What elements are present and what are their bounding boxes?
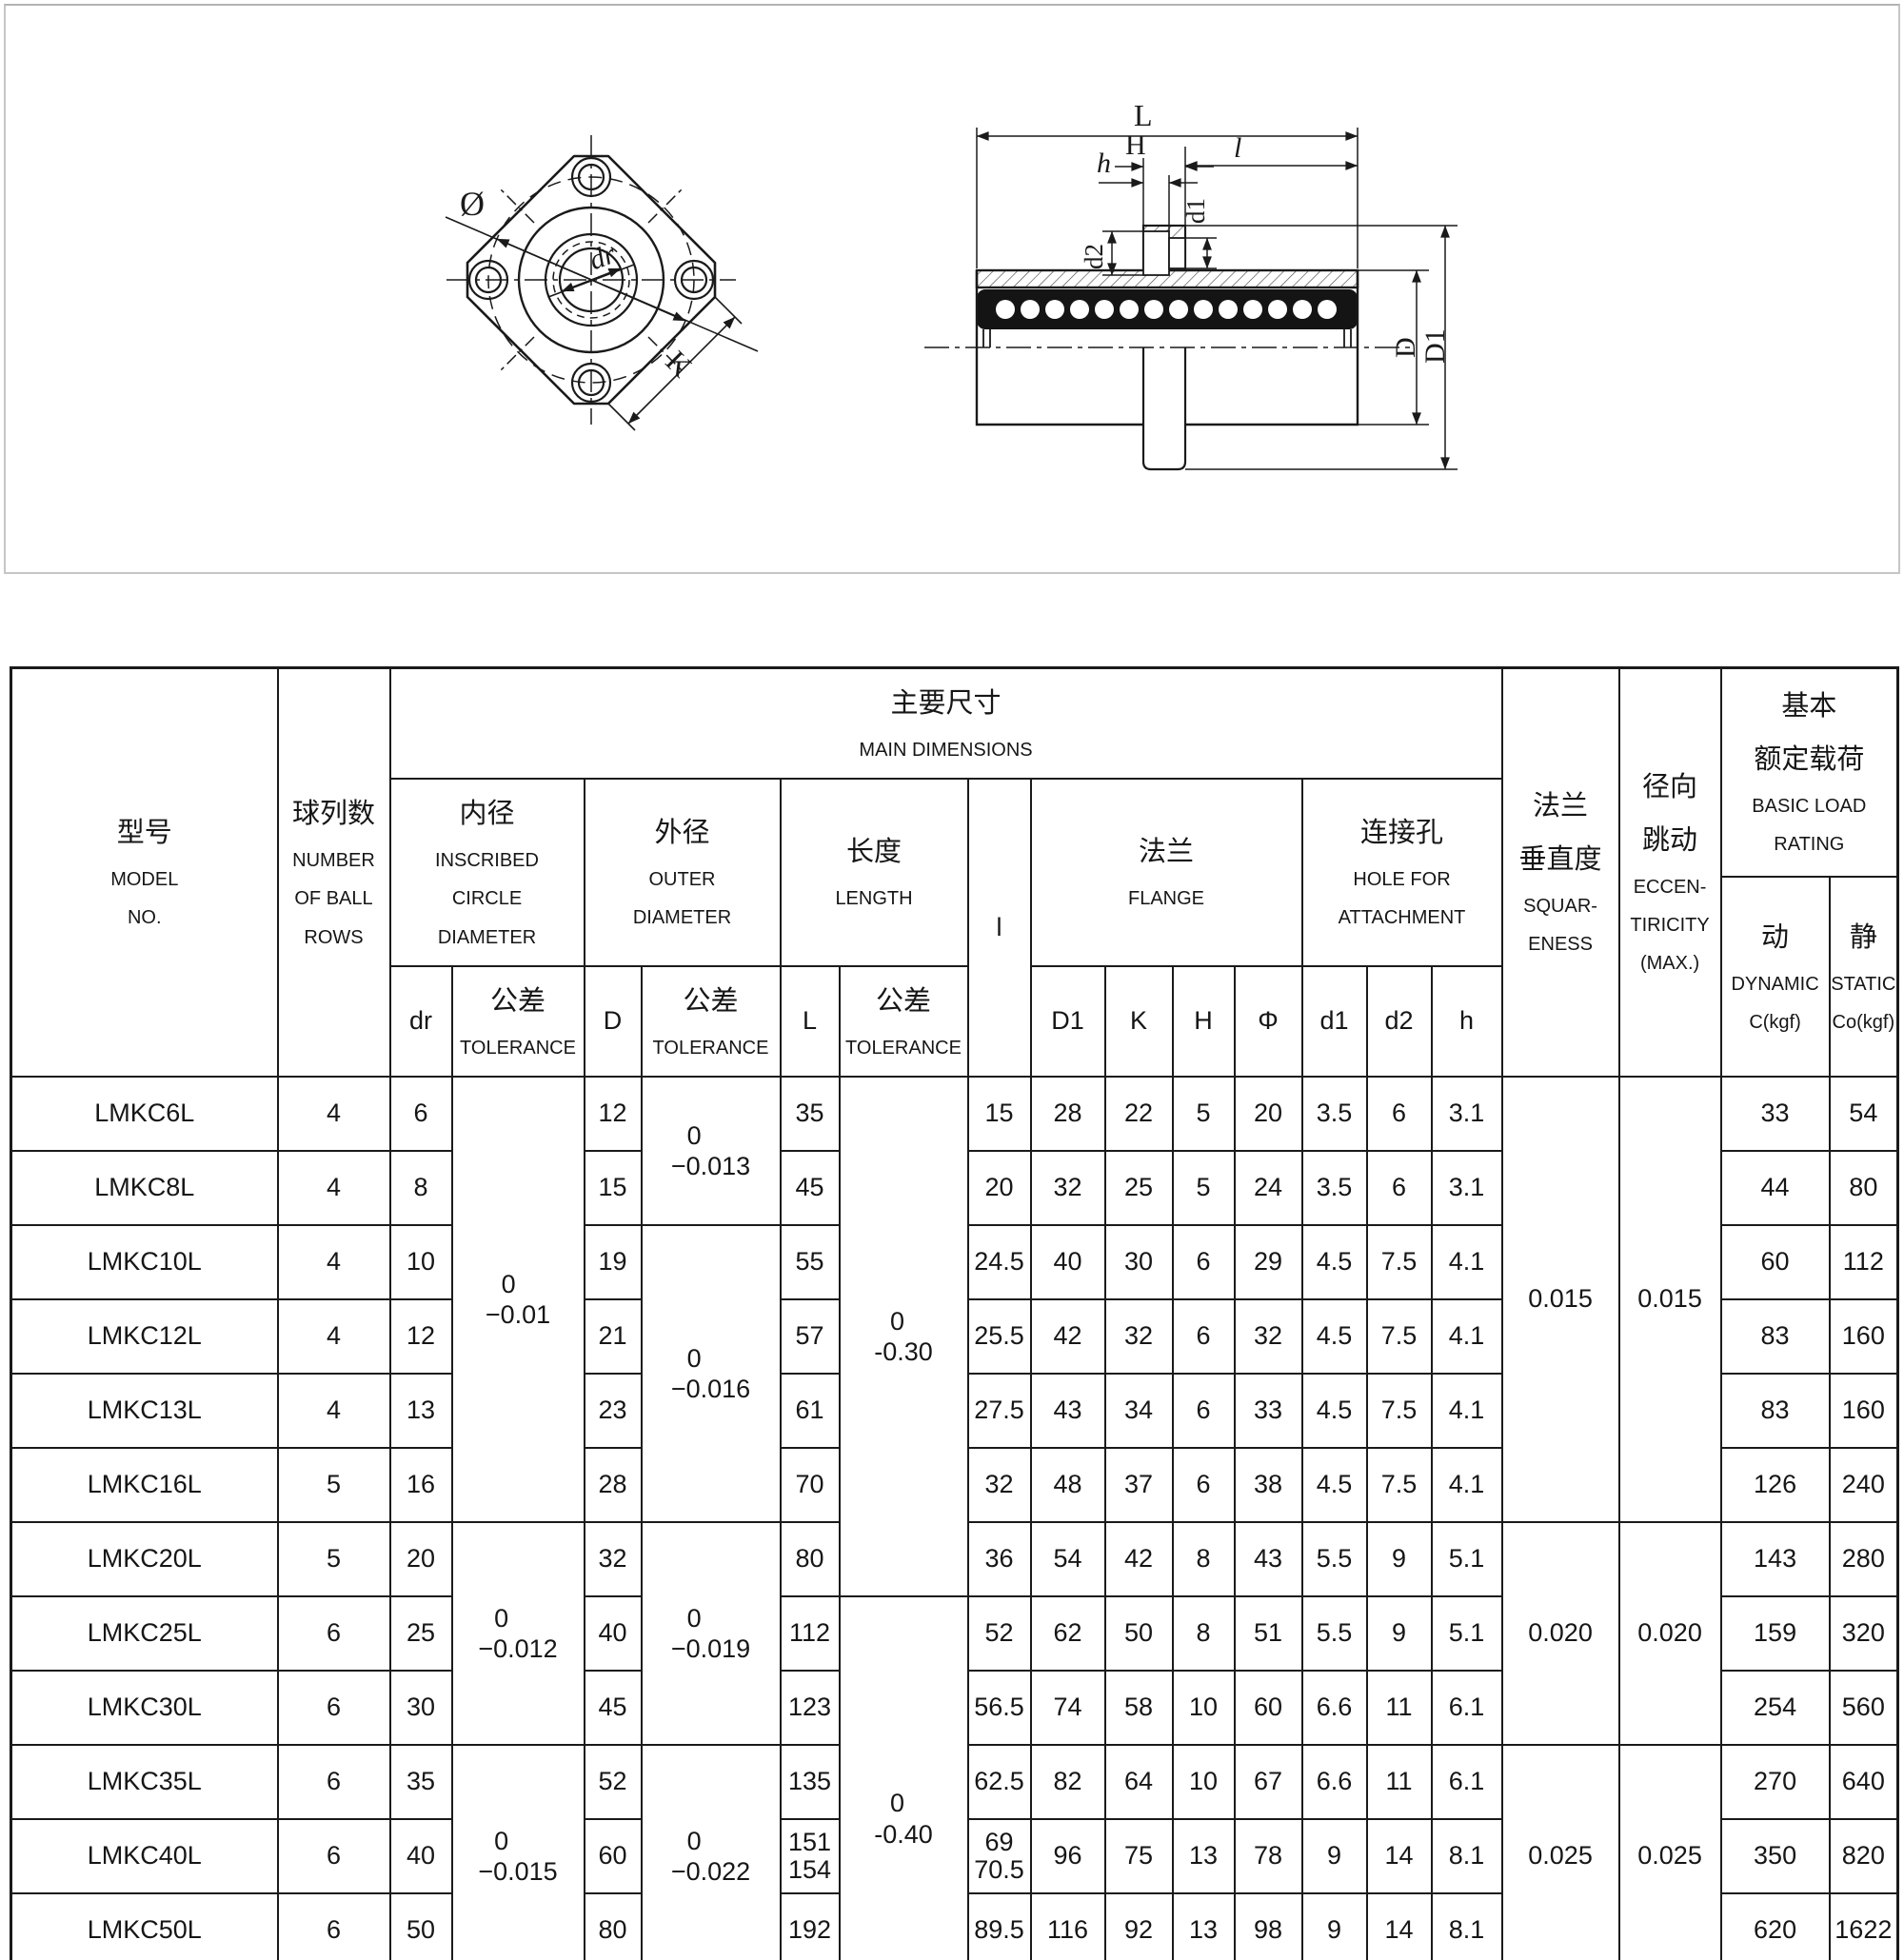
cell-flange-k: 92 — [1105, 1893, 1173, 1960]
cell-hole-d1: 3.5 — [1302, 1151, 1367, 1225]
cell-flange-k: 50 — [1105, 1596, 1173, 1671]
cell-hole-h: 5.1 — [1432, 1522, 1502, 1596]
header-squareness: 法兰 垂直度 SQUAR- ENESS — [1502, 668, 1619, 1078]
cell-length: 135 — [781, 1745, 840, 1819]
cell-ball-rows: 6 — [278, 1596, 390, 1671]
cell-l: 36 — [968, 1522, 1031, 1596]
cell-hole-d1: 5.5 — [1302, 1596, 1367, 1671]
cell-length: 112 — [781, 1596, 840, 1671]
cell-flange-k: 37 — [1105, 1448, 1173, 1522]
cell-model: LMKC8L — [11, 1151, 278, 1225]
cell-hole-d2: 11 — [1367, 1671, 1432, 1745]
front-view-drawing: Ø dr K — [367, 63, 824, 539]
spec-table: 型号 MODEL NO. 球列数 NUMBER OF BALL ROWS 主要尺… — [10, 666, 1899, 1960]
cell-hole-d2: 6 — [1367, 1151, 1432, 1225]
cell-length: 151 154 — [781, 1819, 840, 1893]
page: Ø dr K — [0, 0, 1904, 1960]
cell-hole-d1: 9 — [1302, 1819, 1367, 1893]
cell-ball-rows: 5 — [278, 1448, 390, 1522]
cell-static-load: 160 — [1830, 1299, 1898, 1374]
cell-flange-phi: 98 — [1235, 1893, 1302, 1960]
header-K: K — [1105, 966, 1173, 1077]
header-l: l — [968, 779, 1031, 1077]
cell-length: 61 — [781, 1374, 840, 1448]
cell-d-tolerance: 0−0.022 — [642, 1745, 781, 1960]
header-flange: 法兰 FLANGE — [1031, 779, 1302, 966]
flange-outline — [446, 135, 758, 430]
cell-dr-tolerance: 0−0.015 — [452, 1745, 585, 1960]
header-static-load: 静 STATIC Co(kgf) — [1830, 877, 1898, 1077]
cell-static-load: 640 — [1830, 1745, 1898, 1819]
cell-squareness: 0.025 — [1502, 1745, 1619, 1960]
cell-dynamic-load: 126 — [1721, 1448, 1830, 1522]
cell-model: LMKC16L — [11, 1448, 278, 1522]
cell-length-tolerance: 0-0.40 — [840, 1596, 968, 1960]
cell-hole-h: 4.1 — [1432, 1299, 1502, 1374]
cell-ball-rows: 6 — [278, 1745, 390, 1819]
cell-length: 35 — [781, 1077, 840, 1151]
cell-outer-diameter: 45 — [585, 1671, 642, 1745]
cell-hole-d1: 9 — [1302, 1893, 1367, 1960]
cell-dynamic-load: 33 — [1721, 1077, 1830, 1151]
cell-l: 56.5 — [968, 1671, 1031, 1745]
header-dr-tolerance: 公差 TOLERANCE — [452, 966, 585, 1077]
cell-dynamic-load: 83 — [1721, 1374, 1830, 1448]
cell-flange-k: 64 — [1105, 1745, 1173, 1819]
header-dynamic-load: 动 DYNAMIC C(kgf) — [1721, 877, 1830, 1077]
header-dr: dr — [390, 966, 452, 1077]
cell-outer-diameter: 23 — [585, 1374, 642, 1448]
cell-hole-d2: 7.5 — [1367, 1225, 1432, 1299]
cell-flange-k: 32 — [1105, 1299, 1173, 1374]
cell-ball-rows: 5 — [278, 1522, 390, 1596]
cell-flange-phi: 60 — [1235, 1671, 1302, 1745]
label-flange-thickness-H: H — [1125, 129, 1146, 161]
cell-l: 24.5 — [968, 1225, 1031, 1299]
cell-l: 69 70.5 — [968, 1819, 1031, 1893]
cell-flange-phi: 38 — [1235, 1448, 1302, 1522]
header-inscribed-circle-diameter: 内径 INSCRIBED CIRCLE DIAMETER — [390, 779, 585, 966]
cell-dynamic-load: 83 — [1721, 1299, 1830, 1374]
header-L-tolerance: 公差 TOLERANCE — [840, 966, 968, 1077]
header-ball-rows: 球列数 NUMBER OF BALL ROWS — [278, 668, 390, 1078]
cell-d-tolerance: 0−0.013 — [642, 1077, 781, 1225]
cell-outer-diameter: 80 — [585, 1893, 642, 1960]
cell-length: 192 — [781, 1893, 840, 1960]
cell-d-tolerance: 0−0.019 — [642, 1522, 781, 1745]
cell-dr: 13 — [390, 1374, 452, 1448]
cell-dynamic-load: 159 — [1721, 1596, 1830, 1671]
label-flange-diameter-D1: D1 — [1419, 328, 1451, 364]
cell-hole-d1: 6.6 — [1302, 1745, 1367, 1819]
cell-hole-h: 4.1 — [1432, 1448, 1502, 1522]
cell-length: 123 — [781, 1671, 840, 1745]
cell-hole-d2: 11 — [1367, 1745, 1432, 1819]
cell-flange-phi: 67 — [1235, 1745, 1302, 1819]
cell-flange-d1: 40 — [1031, 1225, 1105, 1299]
cell-model: LMKC50L — [11, 1893, 278, 1960]
header-h: h — [1432, 966, 1502, 1077]
section-view-drawing: L H h l d1 d2 D D1 — [910, 63, 1519, 558]
cell-outer-diameter: 21 — [585, 1299, 642, 1374]
cell-flange-h: 10 — [1173, 1745, 1235, 1819]
header-D1: D1 — [1031, 966, 1105, 1077]
label-flange-side-k: K — [659, 344, 699, 384]
cell-hole-d1: 4.5 — [1302, 1374, 1367, 1448]
cell-dynamic-load: 60 — [1721, 1225, 1830, 1299]
cell-outer-diameter: 60 — [585, 1819, 642, 1893]
header-model: 型号 MODEL NO. — [11, 668, 278, 1078]
cell-hole-h: 6.1 — [1432, 1671, 1502, 1745]
cell-model: LMKC20L — [11, 1522, 278, 1596]
cell-flange-k: 75 — [1105, 1819, 1173, 1893]
cell-dr: 12 — [390, 1299, 452, 1374]
spec-table-body: LMKC6L460−0.01120−0.013350-0.30152822520… — [11, 1077, 1898, 1960]
cell-length-tolerance: 0-0.30 — [840, 1077, 968, 1596]
cell-l: 20 — [968, 1151, 1031, 1225]
cell-static-load: 112 — [1830, 1225, 1898, 1299]
cell-model: LMKC40L — [11, 1819, 278, 1893]
cell-static-load: 160 — [1830, 1374, 1898, 1448]
cell-static-load: 560 — [1830, 1671, 1898, 1745]
cell-outer-diameter: 52 — [585, 1745, 642, 1819]
cell-flange-h: 6 — [1173, 1299, 1235, 1374]
cell-hole-h: 3.1 — [1432, 1077, 1502, 1151]
cell-flange-d1: 43 — [1031, 1374, 1105, 1448]
cell-model: LMKC25L — [11, 1596, 278, 1671]
cell-model: LMKC13L — [11, 1374, 278, 1448]
cell-model: LMKC12L — [11, 1299, 278, 1374]
cell-hole-d2: 7.5 — [1367, 1374, 1432, 1448]
cell-ball-rows: 4 — [278, 1374, 390, 1448]
cell-dr-tolerance: 0−0.012 — [452, 1522, 585, 1745]
header-H: H — [1173, 966, 1235, 1077]
cell-static-load: 80 — [1830, 1151, 1898, 1225]
cell-flange-phi: 78 — [1235, 1819, 1302, 1893]
cell-l: 32 — [968, 1448, 1031, 1522]
cell-flange-d1: 48 — [1031, 1448, 1105, 1522]
cell-hole-h: 6.1 — [1432, 1745, 1502, 1819]
cell-hole-d2: 6 — [1367, 1077, 1432, 1151]
cell-ball-rows: 4 — [278, 1151, 390, 1225]
cell-flange-d1: 62 — [1031, 1596, 1105, 1671]
cell-dynamic-load: 620 — [1721, 1893, 1830, 1960]
cell-length: 80 — [781, 1522, 840, 1596]
cell-dr: 40 — [390, 1819, 452, 1893]
cell-flange-k: 34 — [1105, 1374, 1173, 1448]
cell-ball-rows: 4 — [278, 1225, 390, 1299]
cell-outer-diameter: 40 — [585, 1596, 642, 1671]
cell-hole-d1: 3.5 — [1302, 1077, 1367, 1151]
cell-flange-phi: 20 — [1235, 1077, 1302, 1151]
cell-flange-h: 6 — [1173, 1374, 1235, 1448]
cell-flange-d1: 74 — [1031, 1671, 1105, 1745]
cell-hole-h: 4.1 — [1432, 1374, 1502, 1448]
cell-dynamic-load: 44 — [1721, 1151, 1830, 1225]
cell-flange-d1: 116 — [1031, 1893, 1105, 1960]
cell-dr: 10 — [390, 1225, 452, 1299]
cell-ball-rows: 6 — [278, 1819, 390, 1893]
label-bolt-circle-diameter: Ø — [460, 185, 485, 223]
cell-l: 52 — [968, 1596, 1031, 1671]
cell-l: 62.5 — [968, 1745, 1031, 1819]
cell-dynamic-load: 270 — [1721, 1745, 1830, 1819]
cell-outer-diameter: 12 — [585, 1077, 642, 1151]
cell-dr: 16 — [390, 1448, 452, 1522]
cell-length: 57 — [781, 1299, 840, 1374]
cell-model: LMKC10L — [11, 1225, 278, 1299]
header-d2: d2 — [1367, 966, 1432, 1077]
cell-flange-phi: 43 — [1235, 1522, 1302, 1596]
cell-flange-k: 22 — [1105, 1077, 1173, 1151]
cell-flange-h: 5 — [1173, 1151, 1235, 1225]
header-D: D — [585, 966, 642, 1077]
cell-hole-d2: 7.5 — [1367, 1299, 1432, 1374]
cell-flange-phi: 32 — [1235, 1299, 1302, 1374]
cell-hole-d1: 4.5 — [1302, 1225, 1367, 1299]
header-hole-for-attachment: 连接孔 HOLE FOR ATTACHMENT — [1302, 779, 1502, 966]
header-length: 长度 LENGTH — [781, 779, 968, 966]
cell-dr: 50 — [390, 1893, 452, 1960]
label-outer-diameter-D: D — [1390, 337, 1421, 358]
cell-eccentricity: 0.025 — [1619, 1745, 1721, 1960]
cell-flange-k: 58 — [1105, 1671, 1173, 1745]
cell-flange-h: 6 — [1173, 1225, 1235, 1299]
cell-hole-d1: 4.5 — [1302, 1299, 1367, 1374]
cell-flange-d1: 28 — [1031, 1077, 1105, 1151]
cell-dr: 25 — [390, 1596, 452, 1671]
cell-hole-d1: 5.5 — [1302, 1522, 1367, 1596]
cell-length: 45 — [781, 1151, 840, 1225]
cell-dynamic-load: 350 — [1721, 1819, 1830, 1893]
cell-hole-d1: 4.5 — [1302, 1448, 1367, 1522]
cell-flange-d1: 82 — [1031, 1745, 1105, 1819]
cell-hole-d2: 9 — [1367, 1522, 1432, 1596]
cell-static-load: 280 — [1830, 1522, 1898, 1596]
header-outer-diameter: 外径 OUTER DIAMETER — [585, 779, 781, 966]
cell-ball-rows: 6 — [278, 1893, 390, 1960]
header-D-tolerance: 公差 TOLERANCE — [642, 966, 781, 1077]
cell-hole-h: 5.1 — [1432, 1596, 1502, 1671]
cell-flange-d1: 54 — [1031, 1522, 1105, 1596]
cell-flange-h: 8 — [1173, 1522, 1235, 1596]
cell-flange-d1: 96 — [1031, 1819, 1105, 1893]
cell-ball-rows: 6 — [278, 1671, 390, 1745]
header-d1: d1 — [1302, 966, 1367, 1077]
cell-model: LMKC6L — [11, 1077, 278, 1151]
label-counterbore-diameter-d2: d2 — [1080, 244, 1108, 269]
cell-outer-diameter: 28 — [585, 1448, 642, 1522]
cell-hole-d2: 7.5 — [1367, 1448, 1432, 1522]
cell-hole-h: 8.1 — [1432, 1893, 1502, 1960]
cell-hole-d2: 14 — [1367, 1893, 1432, 1960]
cell-hole-d1: 6.6 — [1302, 1671, 1367, 1745]
header-main-dimensions: 主要尺寸 MAIN DIMENSIONS — [390, 668, 1502, 780]
cell-static-load: 820 — [1830, 1819, 1898, 1893]
label-length-L: L — [1134, 98, 1153, 132]
cell-eccentricity: 0.015 — [1619, 1077, 1721, 1522]
cell-dr: 35 — [390, 1745, 452, 1819]
cell-model: LMKC35L — [11, 1745, 278, 1819]
cell-flange-h: 13 — [1173, 1819, 1235, 1893]
cell-dr: 8 — [390, 1151, 452, 1225]
cell-static-load: 1622 — [1830, 1893, 1898, 1960]
cell-flange-k: 42 — [1105, 1522, 1173, 1596]
cell-hole-d2: 14 — [1367, 1819, 1432, 1893]
cell-length: 55 — [781, 1225, 840, 1299]
cell-static-load: 240 — [1830, 1448, 1898, 1522]
cell-hole-h: 3.1 — [1432, 1151, 1502, 1225]
cell-ball-rows: 4 — [278, 1077, 390, 1151]
cell-l: 27.5 — [968, 1374, 1031, 1448]
cell-flange-k: 25 — [1105, 1151, 1173, 1225]
cell-flange-phi: 33 — [1235, 1374, 1302, 1448]
cell-l: 89.5 — [968, 1893, 1031, 1960]
cell-outer-diameter: 15 — [585, 1151, 642, 1225]
cell-flange-phi: 24 — [1235, 1151, 1302, 1225]
cell-flange-h: 13 — [1173, 1893, 1235, 1960]
cell-static-load: 54 — [1830, 1077, 1898, 1151]
cell-ball-rows: 4 — [278, 1299, 390, 1374]
label-sleeve-length-l: l — [1234, 132, 1241, 164]
cell-outer-diameter: 19 — [585, 1225, 642, 1299]
cell-flange-k: 30 — [1105, 1225, 1173, 1299]
cell-outer-diameter: 32 — [585, 1522, 642, 1596]
cell-l: 25.5 — [968, 1299, 1031, 1374]
cell-flange-h: 10 — [1173, 1671, 1235, 1745]
cell-dr: 6 — [390, 1077, 452, 1151]
cell-flange-d1: 42 — [1031, 1299, 1105, 1374]
drawing-panel: Ø dr K — [4, 4, 1900, 574]
header-basic-load-rating: 基本 额定载荷 BASIC LOAD RATING — [1721, 668, 1898, 878]
header-phi: Φ — [1235, 966, 1302, 1077]
label-counterbore-depth-h: h — [1097, 148, 1111, 179]
label-hole-diameter-d1: d1 — [1181, 198, 1210, 224]
cell-eccentricity: 0.020 — [1619, 1522, 1721, 1745]
cell-squareness: 0.020 — [1502, 1522, 1619, 1745]
cell-flange-phi: 29 — [1235, 1225, 1302, 1299]
cell-dr: 30 — [390, 1671, 452, 1745]
cell-length: 70 — [781, 1448, 840, 1522]
cell-l: 15 — [968, 1077, 1031, 1151]
header-eccentricity: 径向 跳动 ECCEN- TIRICITY (MAX.) — [1619, 668, 1721, 1078]
cell-squareness: 0.015 — [1502, 1077, 1619, 1522]
cell-dynamic-load: 254 — [1721, 1671, 1830, 1745]
cell-model: LMKC30L — [11, 1671, 278, 1745]
cell-flange-h: 8 — [1173, 1596, 1235, 1671]
bearing-body — [924, 226, 1410, 469]
cell-hole-d2: 9 — [1367, 1596, 1432, 1671]
cell-dr-tolerance: 0−0.01 — [452, 1077, 585, 1522]
table-row: LMKC6L460−0.01120−0.013350-0.30152822520… — [11, 1077, 1898, 1151]
cell-flange-d1: 32 — [1031, 1151, 1105, 1225]
cell-static-load: 320 — [1830, 1596, 1898, 1671]
cell-dr: 20 — [390, 1522, 452, 1596]
cell-flange-h: 5 — [1173, 1077, 1235, 1151]
cell-flange-h: 6 — [1173, 1448, 1235, 1522]
cell-hole-h: 4.1 — [1432, 1225, 1502, 1299]
cell-dynamic-load: 143 — [1721, 1522, 1830, 1596]
header-L: L — [781, 966, 840, 1077]
cell-d-tolerance: 0−0.016 — [642, 1225, 781, 1522]
cell-flange-phi: 51 — [1235, 1596, 1302, 1671]
cell-hole-h: 8.1 — [1432, 1819, 1502, 1893]
